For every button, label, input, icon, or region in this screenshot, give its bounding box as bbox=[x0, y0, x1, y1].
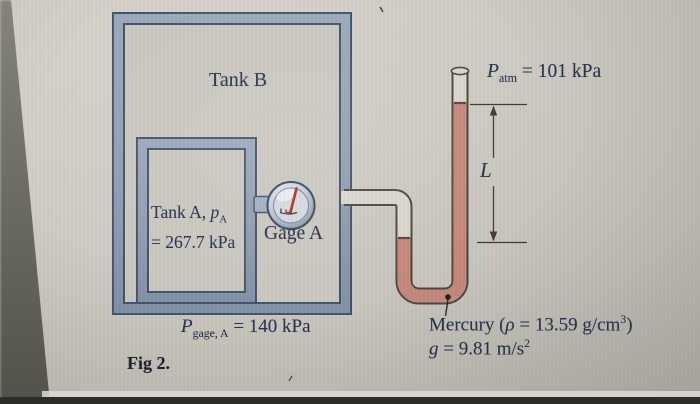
dimension-l-label: L bbox=[480, 158, 492, 183]
tank-b-label: Tank B bbox=[209, 69, 267, 92]
dimension-l-lines bbox=[470, 105, 527, 243]
gage-a-text: Gage A bbox=[264, 223, 323, 244]
photo-speck bbox=[289, 376, 292, 381]
photo-speck bbox=[380, 7, 383, 12]
tank-b-text: Tank B bbox=[209, 69, 267, 91]
photo-bottom-bar bbox=[0, 397, 700, 404]
tank-a-line1: Tank A, pA bbox=[151, 201, 235, 231]
dimension-arrow-down-icon bbox=[490, 232, 497, 242]
gravity-label: g = 9.81 m/s2 bbox=[429, 337, 530, 360]
p-gage-a-label: Pgage, A = 140 kPa bbox=[181, 316, 311, 341]
gage-a-label: Gage A bbox=[264, 223, 323, 245]
tank-a-label: Tank A, pA = 267.7 kPa bbox=[151, 201, 235, 254]
textbook-figure-photo: Tank B Tank A, pA = 267.7 kPa Gage A Pat… bbox=[0, 0, 700, 404]
dimension-arrow-up-icon bbox=[490, 106, 497, 116]
tube-open-top bbox=[451, 67, 468, 74]
tank-a-line2: = 267.7 kPa bbox=[151, 231, 235, 254]
p-atm-label: Patm = 101 kPa bbox=[487, 61, 601, 86]
figure-caption: Fig 2. bbox=[127, 353, 170, 374]
mercury-label: Mercury (ρ = 13.59 g/cm3) bbox=[429, 313, 633, 336]
mercury-leader-dot bbox=[445, 294, 451, 300]
